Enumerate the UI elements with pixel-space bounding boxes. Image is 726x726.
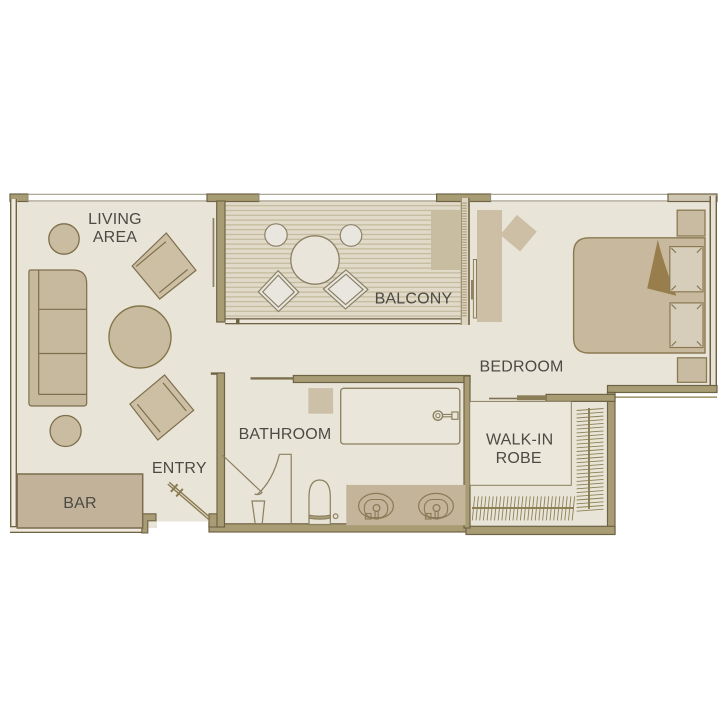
svg-text:BAR: BAR — [63, 495, 97, 512]
svg-text:BEDROOM: BEDROOM — [479, 358, 563, 375]
svg-text:BALCONY: BALCONY — [375, 290, 453, 307]
svg-text:LIVING: LIVING — [88, 211, 142, 228]
svg-text:ENTRY: ENTRY — [152, 460, 207, 477]
svg-text:ROBE: ROBE — [496, 450, 542, 467]
svg-text:AREA: AREA — [93, 229, 137, 246]
svg-text:BATHROOM: BATHROOM — [239, 426, 332, 443]
svg-text:WALK-IN: WALK-IN — [486, 432, 553, 449]
